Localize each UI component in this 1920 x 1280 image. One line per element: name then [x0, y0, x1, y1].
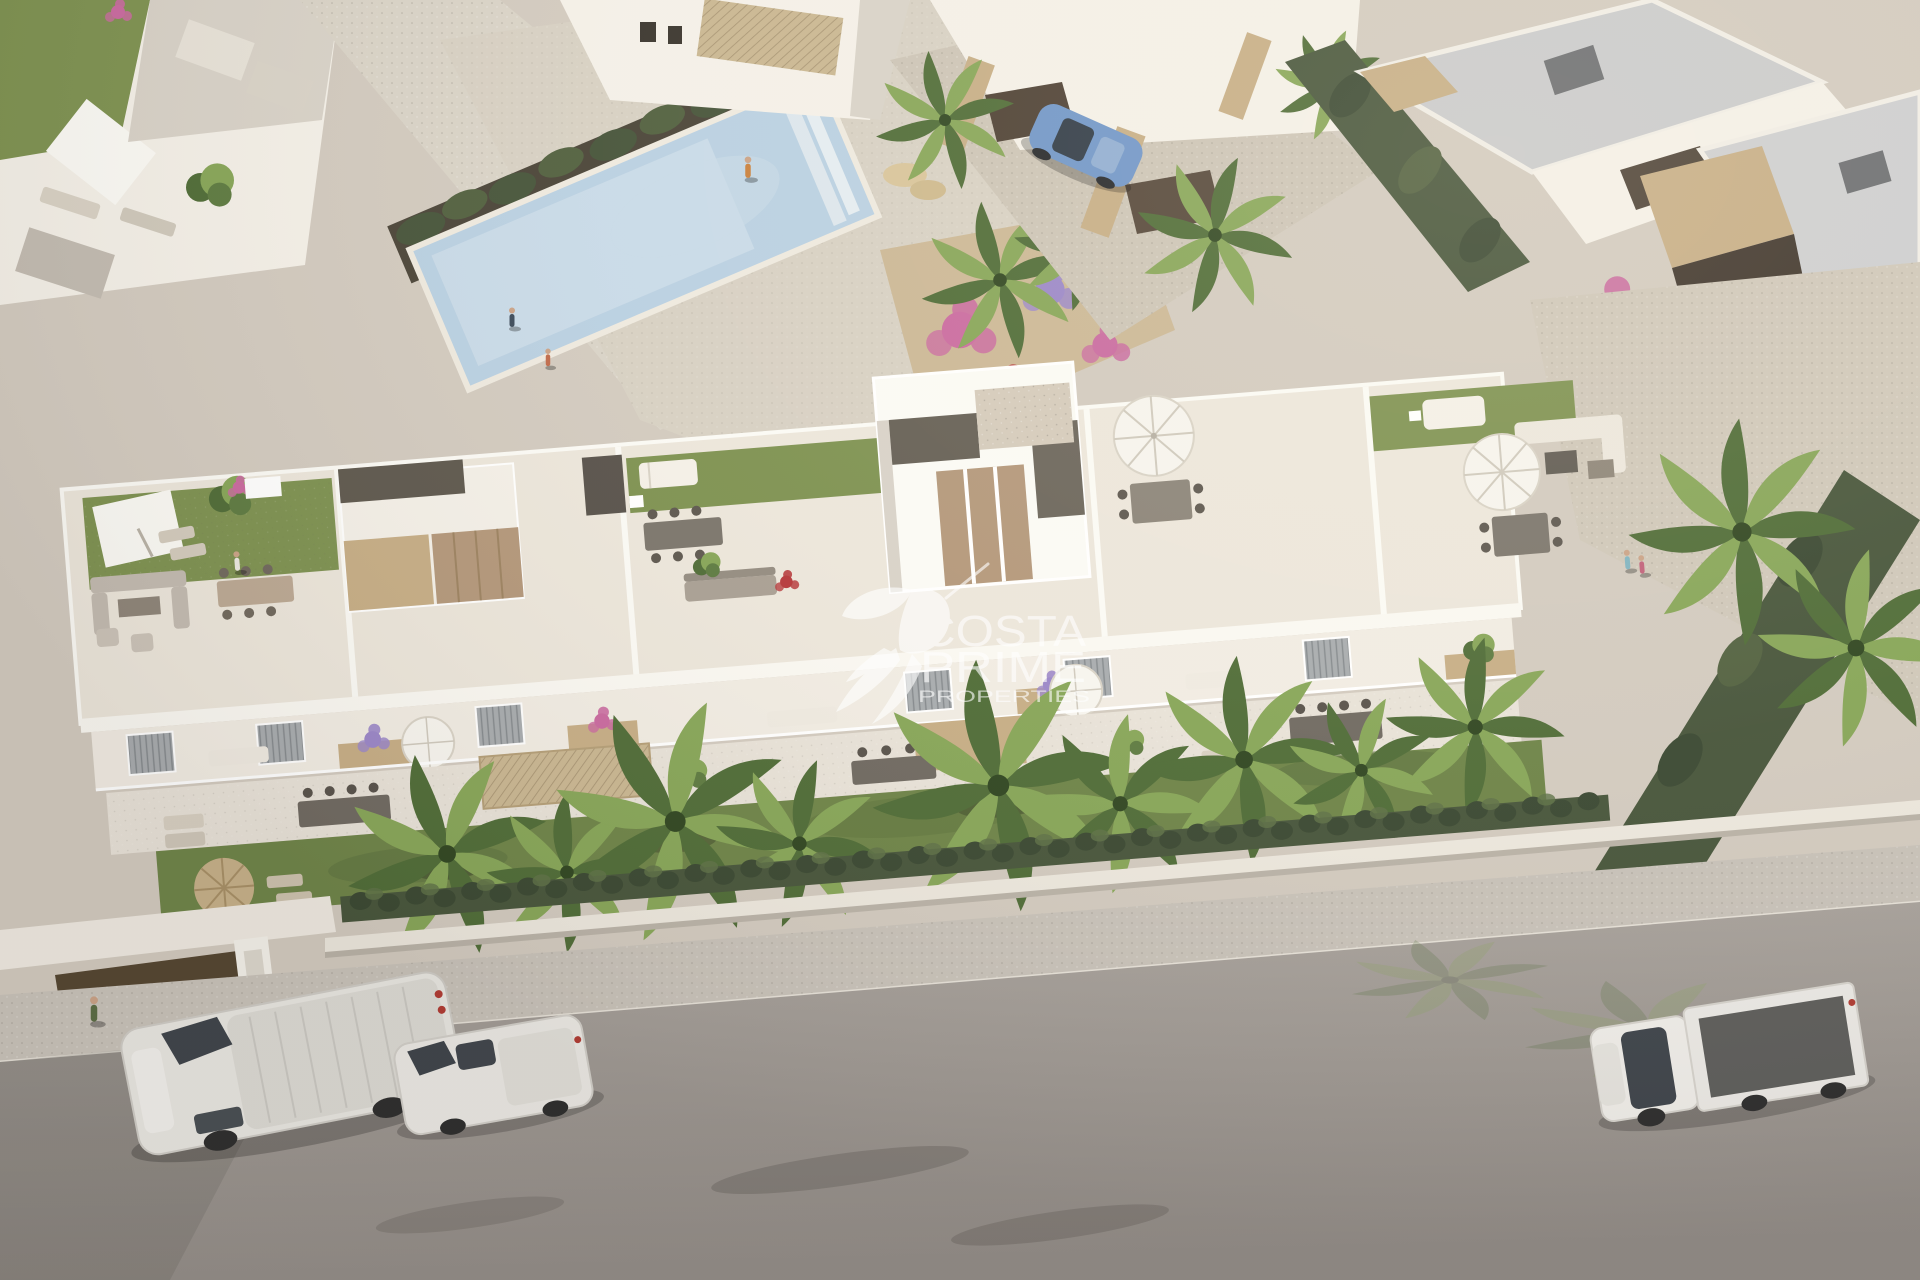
render-canvas: COSTA PRIME PROPERTIES: [0, 0, 1920, 1280]
brand-line-2: PRIME: [920, 643, 1086, 692]
aerial-render: COSTA PRIME PROPERTIES: [0, 0, 1920, 1280]
brand-line-3: PROPERTIES: [918, 687, 1090, 706]
